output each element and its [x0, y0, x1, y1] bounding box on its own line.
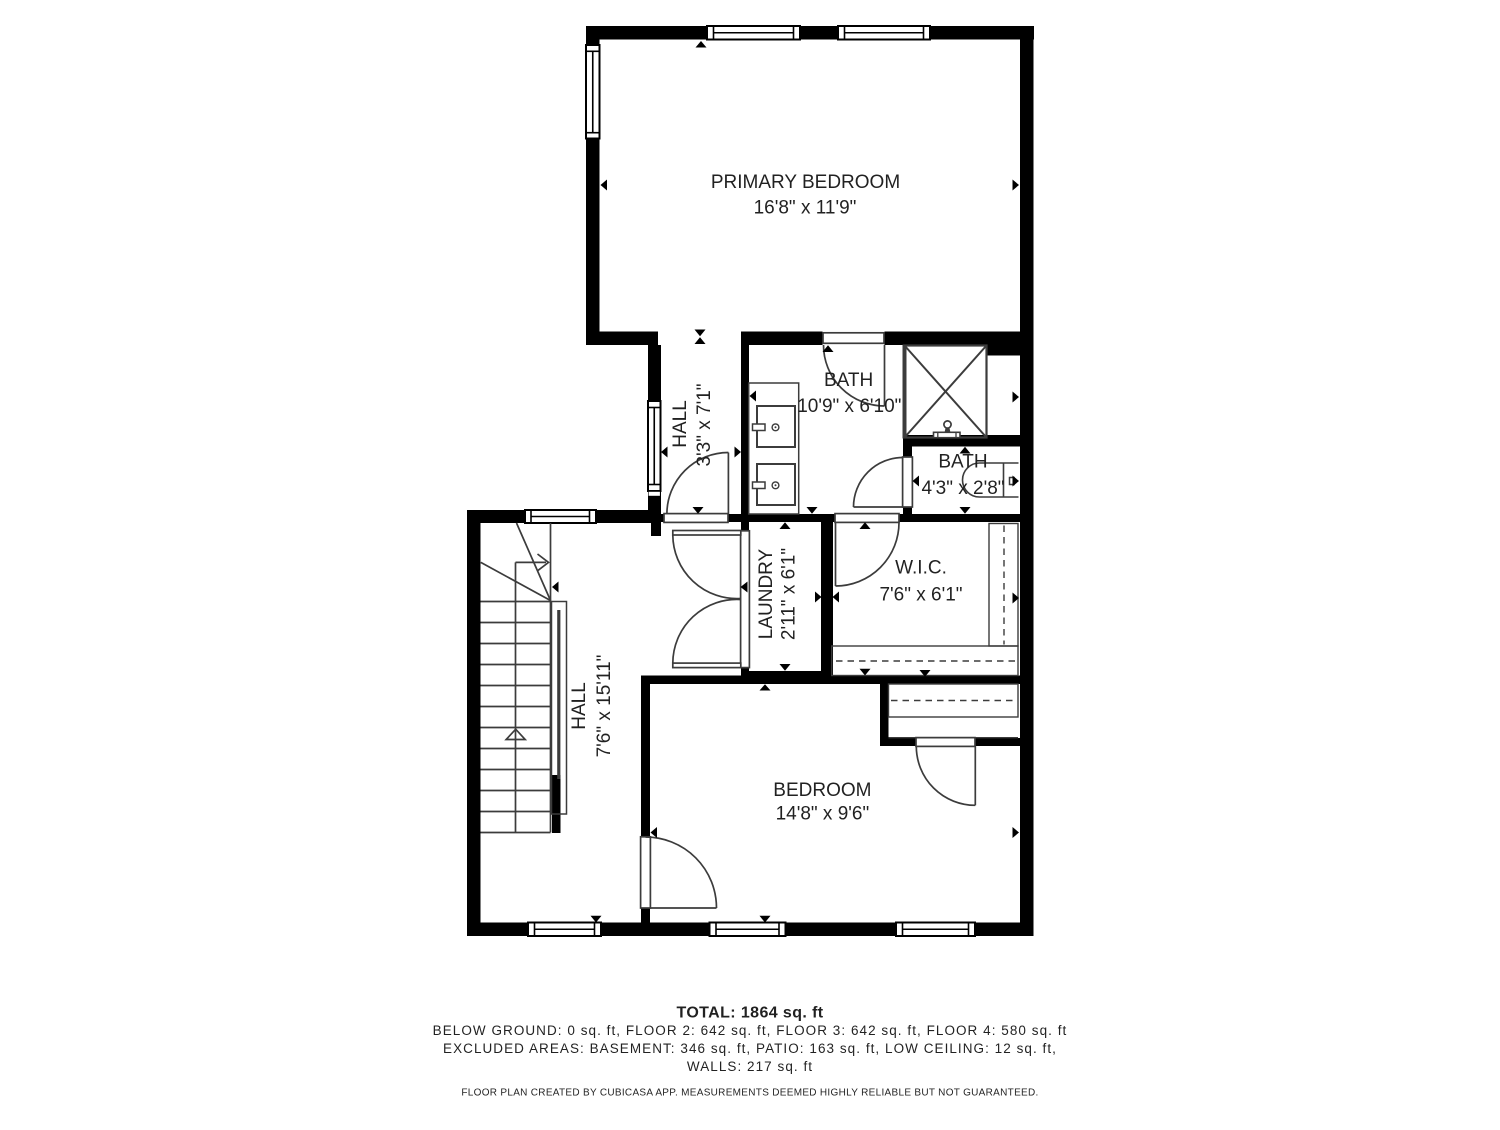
svg-text:W.I.C.: W.I.C. [895, 558, 947, 579]
svg-text:BATH: BATH [938, 452, 987, 473]
svg-text:PRIMARY BEDROOM: PRIMARY BEDROOM [711, 172, 900, 193]
svg-text:7'6" x 6'1": 7'6" x 6'1" [879, 584, 962, 605]
svg-text:BEDROOM: BEDROOM [773, 780, 871, 801]
svg-text:FLOOR PLAN CREATED BY CUBICASA: FLOOR PLAN CREATED BY CUBICASA APP. MEAS… [461, 1088, 1038, 1099]
svg-text:14'8" x 9'6": 14'8" x 9'6" [776, 804, 870, 825]
svg-text:HALL: HALL [670, 400, 691, 448]
svg-text:TOTAL: 1864 sq. ft: TOTAL: 1864 sq. ft [676, 1005, 823, 1022]
svg-text:10'9" x 6'10": 10'9" x 6'10" [797, 396, 901, 417]
svg-text:HALL: HALL [569, 682, 590, 730]
svg-text:EXCLUDED AREAS: BASEMENT: 346: EXCLUDED AREAS: BASEMENT: 346 sq. ft, PA… [443, 1041, 1057, 1056]
svg-text:4'3" x 2'8": 4'3" x 2'8" [921, 478, 1004, 499]
svg-text:16'8" x 11'9": 16'8" x 11'9" [754, 198, 857, 219]
svg-text:LAUNDRY: LAUNDRY [756, 548, 777, 639]
svg-text:WALLS: 217 sq. ft: WALLS: 217 sq. ft [687, 1059, 813, 1074]
svg-text:2'11" x 6'1": 2'11" x 6'1" [779, 548, 800, 640]
svg-text:3'3" x 7'1": 3'3" x 7'1" [694, 383, 715, 466]
svg-text:BATH: BATH [824, 370, 873, 391]
svg-text:BELOW GROUND: 0 sq. ft, FLOOR: BELOW GROUND: 0 sq. ft, FLOOR 2: 642 sq.… [433, 1023, 1068, 1038]
svg-text:7'6" x 15'11": 7'6" x 15'11" [594, 655, 615, 758]
